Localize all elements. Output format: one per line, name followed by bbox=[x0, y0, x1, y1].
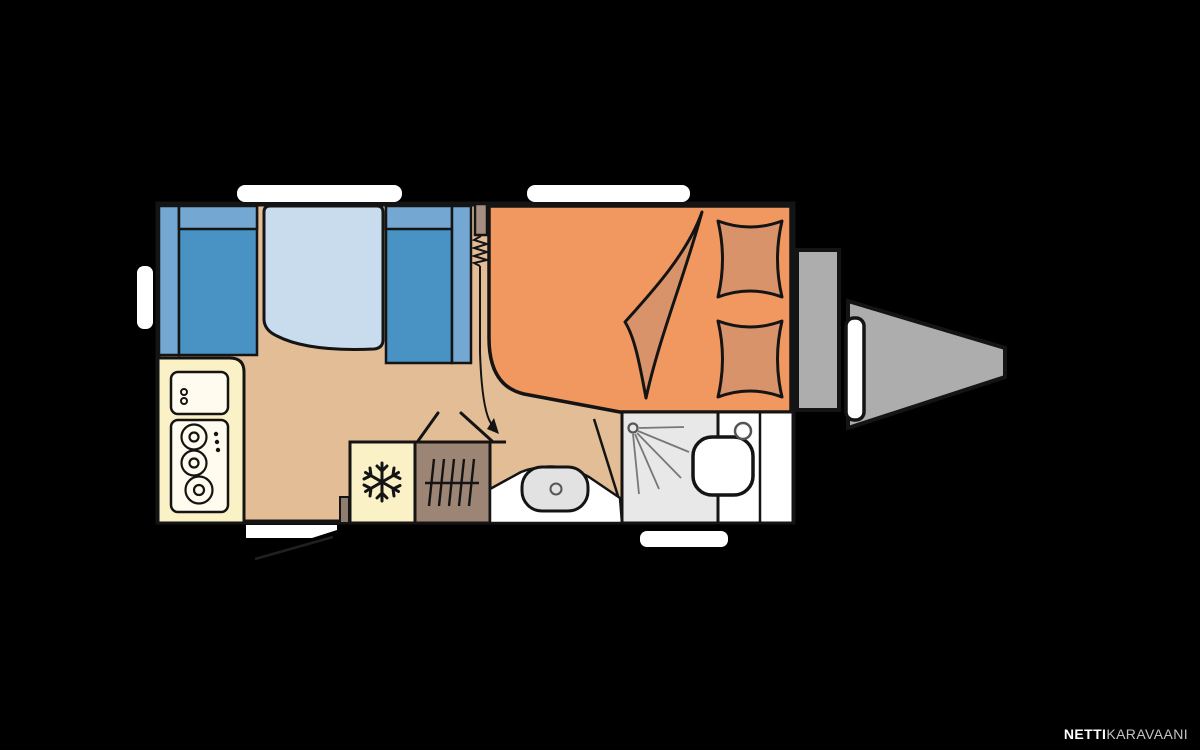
bench-left-headrest bbox=[179, 206, 257, 229]
fridge-side-panel bbox=[340, 497, 349, 523]
watermark-brand-bold: NETTI bbox=[1064, 726, 1106, 742]
window-rear bbox=[137, 266, 153, 329]
pillow-bottom bbox=[718, 321, 782, 397]
drawbar-hitch bbox=[848, 301, 1005, 428]
window-top-right bbox=[527, 185, 690, 202]
floorplan-canvas bbox=[0, 0, 1200, 750]
kitchen-sink bbox=[171, 372, 228, 414]
toilet-flush-icon bbox=[735, 423, 751, 439]
caravan-floorplan bbox=[0, 0, 1200, 750]
jockey-wheel bbox=[846, 318, 864, 420]
entry-door-swing bbox=[255, 537, 333, 559]
bench-right-headrest bbox=[386, 206, 452, 229]
pillow-top bbox=[718, 221, 782, 297]
bench-left-backrest bbox=[159, 206, 179, 355]
window-top-left bbox=[237, 185, 402, 202]
bench-right-backrest bbox=[452, 206, 471, 363]
gas-locker-box bbox=[797, 250, 839, 410]
watermark-brand: NETTIKARAVAANI bbox=[1064, 726, 1188, 742]
watermark-brand-light: KARAVAANI bbox=[1106, 726, 1188, 742]
stove bbox=[171, 420, 228, 512]
partition-wall bbox=[475, 204, 487, 235]
window-bathroom bbox=[640, 531, 728, 547]
washbasin bbox=[522, 467, 588, 511]
entry-door-marker bbox=[246, 525, 337, 538]
dinette-table bbox=[264, 206, 383, 349]
toilet bbox=[693, 437, 753, 495]
